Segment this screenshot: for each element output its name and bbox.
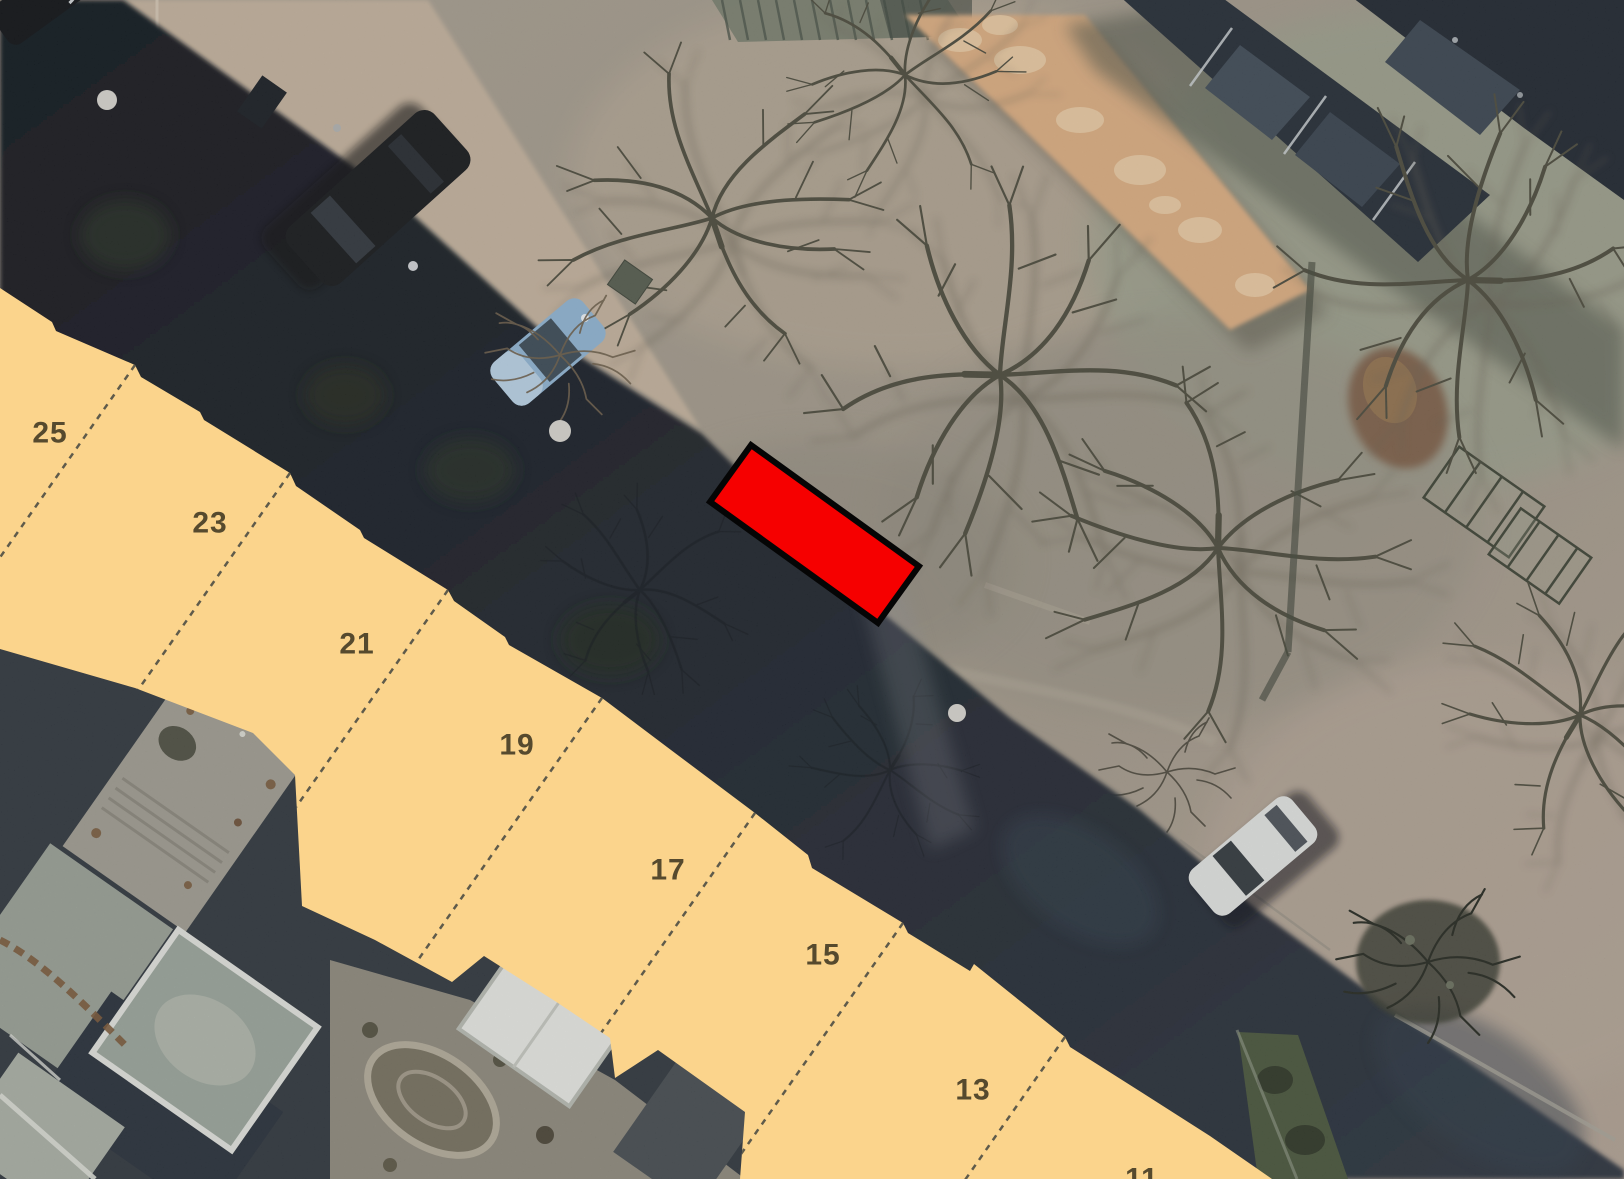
parcel-label-17: 17 (650, 854, 685, 887)
aerial-map-canvas[interactable]: 2523211917151311 (0, 0, 1624, 1179)
parcel-label-19: 19 (499, 729, 534, 762)
parcel-label-25: 25 (32, 417, 67, 450)
parcel-label-15: 15 (805, 939, 840, 972)
parcel-label-23: 23 (192, 507, 227, 540)
parcel-label-21: 21 (339, 628, 374, 661)
aerial-map-viewport[interactable]: 2523211917151311 (0, 0, 1624, 1179)
parcel-label-13: 13 (955, 1074, 990, 1107)
parcel-label-11: 11 (1125, 1163, 1159, 1179)
